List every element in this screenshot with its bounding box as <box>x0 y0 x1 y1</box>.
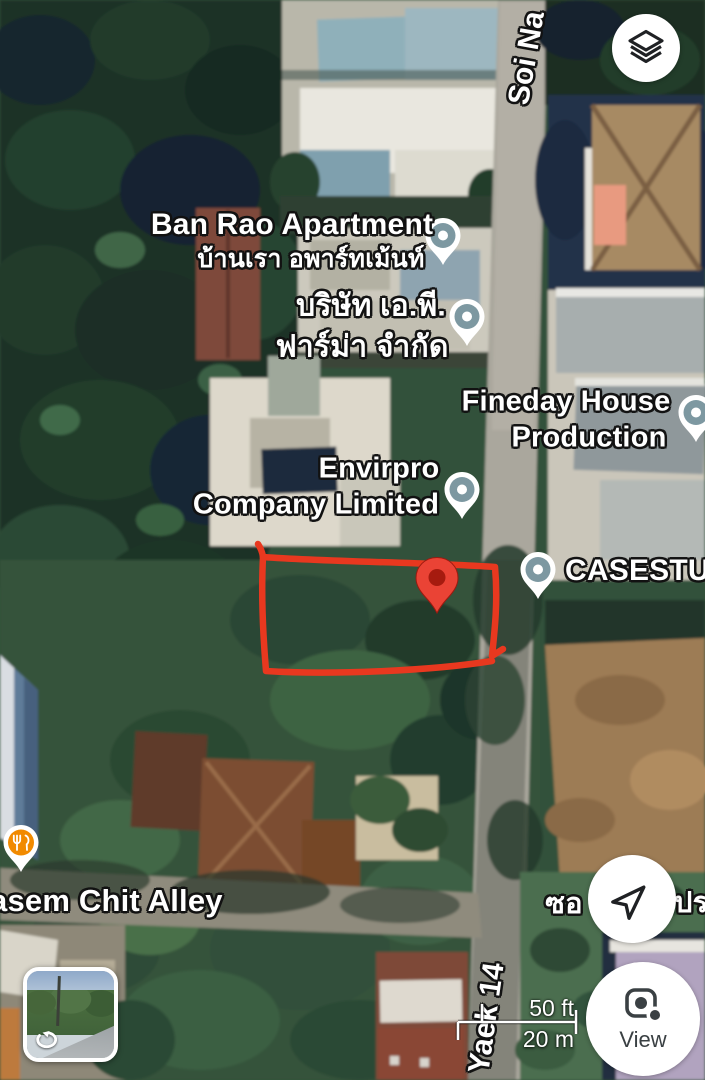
layers-button[interactable] <box>612 14 680 82</box>
restaurant-pin-icon[interactable] <box>1 823 41 875</box>
street-label-thai-fragment-left: ซอ <box>545 880 583 926</box>
navigation-arrow-icon <box>609 876 655 922</box>
place-pin-icon[interactable] <box>518 550 558 602</box>
lens-view-button[interactable]: View <box>586 962 700 1076</box>
place-label-fineday-house-line1[interactable]: Fineday House <box>462 386 671 419</box>
view-button-label: View <box>619 1027 666 1053</box>
maps-satellite-view: Ban Rao Apartment บ้านเรา อพาร์ทเม้นท์ บ… <box>0 0 705 1080</box>
layers-icon <box>626 28 666 68</box>
scale-imperial-label: 50 ft <box>494 995 574 1022</box>
place-label-ban-rao-apartment[interactable]: Ban Rao Apartment <box>151 208 433 242</box>
place-label-casestudy[interactable]: CASESTUD <box>565 554 705 588</box>
street-view-thumbnail[interactable] <box>23 967 118 1062</box>
place-label-envirpro-line1[interactable]: Envirpro <box>319 453 440 486</box>
scale-metric-label: 20 m <box>494 1026 574 1053</box>
place-label-ban-rao-apartment-thai[interactable]: บ้านเรา อพาร์ทเม้นท์ <box>197 239 424 279</box>
place-pin-icon[interactable] <box>676 393 705 445</box>
my-location-button[interactable] <box>588 855 676 943</box>
place-pin-icon[interactable] <box>442 470 482 522</box>
rotate-360-icon <box>34 1031 60 1051</box>
place-label-ap-pharma-line2[interactable]: ฟาร์ม่า จำกัด <box>275 324 448 371</box>
place-label-envirpro-line2[interactable]: Company Limited <box>193 489 439 522</box>
street-view-trees <box>27 990 114 1035</box>
camera-lens-icon <box>621 985 665 1025</box>
street-label-kasem-chit-alley: asem Chit Alley <box>0 883 223 919</box>
selected-location-pin-icon[interactable] <box>413 555 461 615</box>
place-pin-icon[interactable] <box>447 297 487 349</box>
place-label-ap-pharma-line1[interactable]: บริษัท เอ.พี. <box>296 283 446 330</box>
place-label-fineday-house-line2[interactable]: Production <box>511 422 666 455</box>
street-label-thai-fragment-right: ปร <box>674 879 705 925</box>
